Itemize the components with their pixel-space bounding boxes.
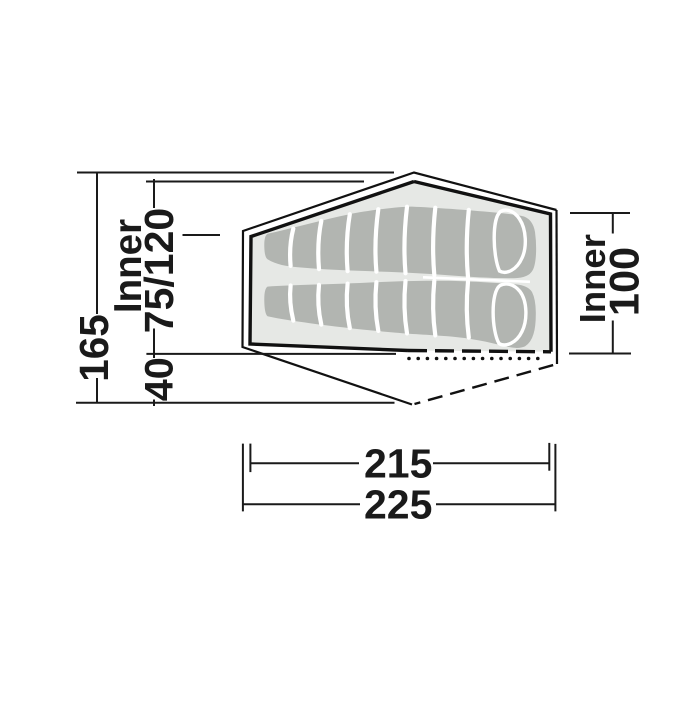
svg-text:75/120: 75/120 [136,208,182,333]
svg-text:165: 165 [71,314,117,382]
svg-text:215: 215 [364,440,432,486]
svg-text:40: 40 [137,357,181,401]
svg-text:100: 100 [601,247,648,316]
svg-text:225: 225 [364,481,432,527]
